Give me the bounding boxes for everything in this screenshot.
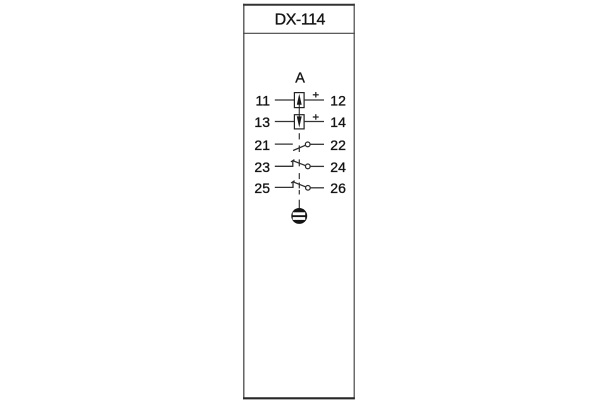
svg-text:26: 26: [330, 180, 346, 196]
svg-text:23: 23: [254, 159, 270, 175]
svg-text:12: 12: [330, 93, 346, 109]
svg-text:13: 13: [254, 114, 270, 130]
svg-text:22: 22: [330, 137, 346, 153]
svg-text:24: 24: [330, 159, 346, 175]
svg-text:21: 21: [254, 137, 270, 153]
svg-text:DX-114: DX-114: [275, 12, 326, 29]
svg-text:25: 25: [254, 180, 270, 196]
svg-text:11: 11: [255, 93, 270, 109]
svg-text:A: A: [295, 70, 305, 86]
svg-text:14: 14: [330, 114, 346, 130]
